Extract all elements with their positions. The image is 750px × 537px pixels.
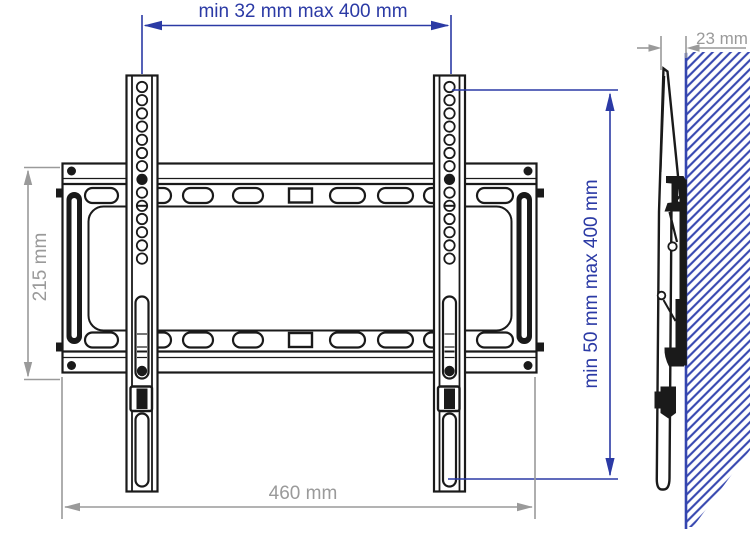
edge-tab bbox=[538, 343, 545, 352]
edge-tab bbox=[56, 343, 63, 352]
right-vesa-slot bbox=[517, 192, 533, 344]
corner-screw bbox=[524, 361, 533, 370]
right-rail bbox=[434, 76, 465, 492]
left-vesa-slot bbox=[67, 192, 83, 344]
dim-left-vertical: 215 mm bbox=[24, 168, 60, 380]
dim-top-horizontal: min 32 mm max 400 mm bbox=[142, 1, 451, 74]
lock-bolt bbox=[661, 387, 677, 419]
dim-top-label: min 32 mm max 400 mm bbox=[198, 1, 407, 22]
wall-mount-dimension-diagram: min 32 mm max 400 mm min 50 mm max 400 m… bbox=[0, 0, 750, 537]
rail-profile bbox=[657, 69, 680, 490]
side-view bbox=[655, 52, 750, 529]
profile-hole bbox=[658, 292, 666, 300]
diagram-canvas: min 32 mm max 400 mm min 50 mm max 400 m… bbox=[0, 0, 750, 537]
front-view bbox=[56, 76, 544, 492]
corner-screw bbox=[524, 167, 533, 176]
corner-screw bbox=[67, 167, 76, 176]
edge-tab bbox=[538, 189, 545, 198]
dim-left-label: 215 mm bbox=[30, 233, 51, 302]
bracket-profile bbox=[655, 69, 687, 490]
corner-screw bbox=[67, 361, 76, 370]
dim-wall-offset-label: 23 mm bbox=[696, 29, 748, 48]
bottom-hook-bar bbox=[676, 299, 685, 349]
dim-bottom-label: 460 mm bbox=[269, 483, 338, 504]
dim-right-label: min 50 mm max 400 mm bbox=[581, 179, 602, 388]
profile-hole bbox=[668, 242, 676, 250]
wall-hatch bbox=[686, 52, 750, 528]
edge-tab bbox=[56, 189, 63, 198]
lock-bolt-nut bbox=[655, 392, 662, 409]
left-rail bbox=[127, 76, 158, 492]
